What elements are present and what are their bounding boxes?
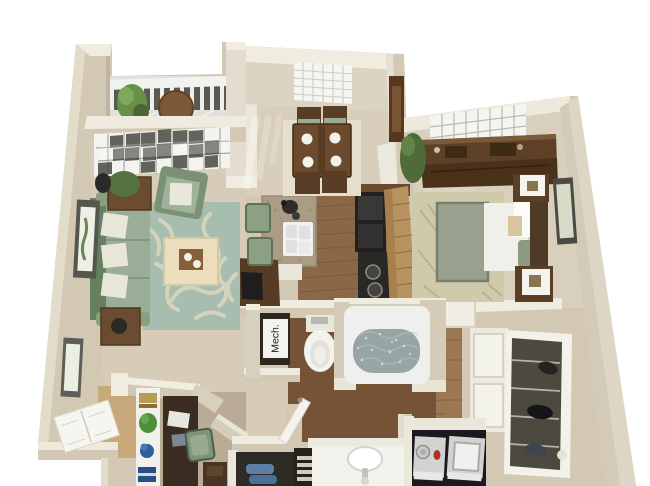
- svg-text:Mech.: Mech.: [270, 324, 282, 353]
